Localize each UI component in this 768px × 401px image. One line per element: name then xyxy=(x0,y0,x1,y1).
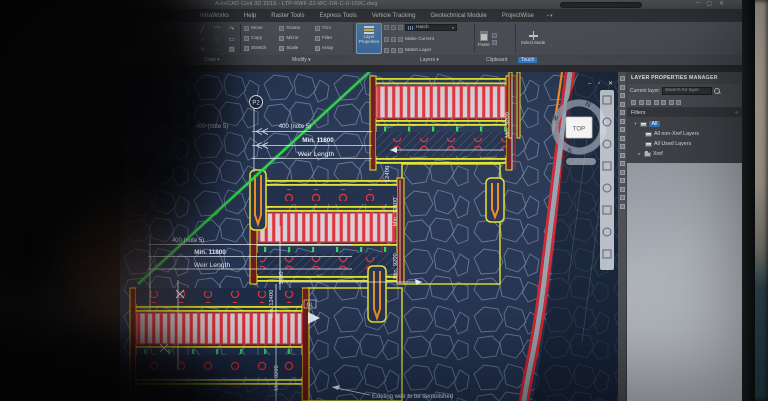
stretch-button[interactable]: Stretch xyxy=(244,46,279,51)
sheet-pile-3 xyxy=(368,266,386,322)
hatch-icon[interactable]: ▨ xyxy=(229,45,235,53)
stretch-icon xyxy=(244,46,249,51)
select-mode-button[interactable]: Select Mode xyxy=(521,31,545,46)
search-icon[interactable] xyxy=(714,88,720,94)
current-layer-row: Current layer: xyxy=(627,84,742,97)
palette-tool-icon[interactable] xyxy=(620,178,625,183)
dim-min-12400-v1: Min. 12400 xyxy=(393,198,399,227)
palette-tool-icon[interactable] xyxy=(620,127,625,132)
polyline-icon[interactable]: ∿ xyxy=(200,45,205,53)
modify-panel-label[interactable]: Modify ▾ xyxy=(292,57,311,63)
array-icon xyxy=(315,46,320,51)
trim-button[interactable]: Trim xyxy=(315,26,350,31)
svg-text:P2: P2 xyxy=(252,101,260,107)
layer-merge-icon[interactable] xyxy=(398,48,403,53)
layers-panel: Hatch ▾ Make Current Match Layer xyxy=(383,22,473,55)
palette-toolbar-icon[interactable] xyxy=(661,100,666,105)
demolish-note-text: Existing weir to be demolished xyxy=(372,394,453,400)
scale-button[interactable]: Scale xyxy=(279,46,314,51)
arc-icon[interactable]: ⌒ xyxy=(214,24,221,34)
window-title: AutoCAD Civil 3D 2019 - LTP-RWF-22-WC-DR… xyxy=(215,1,378,7)
palette-title: LAYER PROPERTIES MANAGER xyxy=(627,72,742,84)
tree-item-xref[interactable]: ▸ Xref xyxy=(627,149,742,159)
move-icon xyxy=(244,26,249,31)
mirror-button[interactable]: Mirror xyxy=(279,36,314,41)
rotate-icon xyxy=(279,26,284,31)
maximize-button[interactable]: ▢ xyxy=(706,0,712,7)
layers-used-icon xyxy=(645,142,652,147)
touch-panel: Select Mode xyxy=(517,22,549,55)
layer-off-icon[interactable] xyxy=(398,37,403,42)
palette-toolbar[interactable] xyxy=(627,97,742,108)
chevron-down-icon: ▾ xyxy=(452,25,454,30)
palette-tool-icon[interactable] xyxy=(620,144,625,149)
palette-side-icons[interactable] xyxy=(618,72,627,401)
palette-tool-icon[interactable] xyxy=(620,110,625,115)
weir-length-text-2: Weir Length xyxy=(194,262,231,269)
copy-button[interactable]: Copy xyxy=(244,36,279,41)
layer-list-area[interactable] xyxy=(627,163,742,401)
menu-help[interactable]: Help xyxy=(242,12,258,20)
sheet-pile-2 xyxy=(486,178,504,222)
layer-prev-icon[interactable] xyxy=(391,48,396,53)
layer-properties-button[interactable]: Layer Properties xyxy=(356,23,382,54)
close-button[interactable]: ✕ xyxy=(719,0,724,7)
p2-marker: P2 xyxy=(250,96,263,109)
menu-vehicle-tracking[interactable]: Vehicle Tracking xyxy=(370,12,418,20)
titlebar: AutoCAD Civil 3D 2019 - LTP-RWF-22-WC-DR… xyxy=(120,0,742,9)
dim-400-note5-text: 400 (note 5) xyxy=(279,124,311,130)
mirror-icon xyxy=(279,36,284,41)
folder-icon xyxy=(644,152,651,157)
tree-expand-icon[interactable]: ▾ xyxy=(633,121,638,127)
paste-icon xyxy=(480,31,488,41)
dim-400-note5-text-2: 400 (note 5) xyxy=(172,238,204,244)
monitor-bezel xyxy=(742,0,755,401)
trim-icon xyxy=(315,26,320,31)
rotate-button[interactable]: Rotate xyxy=(279,26,314,31)
palette-tool-icon[interactable] xyxy=(620,76,625,81)
dim-3400-v: 3400 xyxy=(279,272,285,285)
layer-properties-icon xyxy=(364,26,374,34)
menu-overflow-icon[interactable]: ▪ ▾ xyxy=(547,13,553,19)
touch-panel-label[interactable]: Touch xyxy=(518,57,537,63)
draw-panel-label[interactable]: Draw ▾ xyxy=(204,57,220,63)
layer-properties-palette: LAYER PROPERTIES MANAGER Current layer: … xyxy=(618,72,742,401)
clipboard-panel: Paste xyxy=(476,22,514,55)
layers-all-icon xyxy=(640,122,647,127)
layers-filter-icon xyxy=(645,132,652,137)
rect-icon[interactable]: ▭ xyxy=(229,35,235,43)
circle-icon[interactable]: ○ xyxy=(200,36,204,43)
palette-toolbar-icon[interactable] xyxy=(631,100,636,105)
palette-tool-icon[interactable] xyxy=(620,136,625,141)
select-mode-icon xyxy=(529,31,538,40)
filters-header[interactable]: Filters « xyxy=(627,108,742,117)
palette-tool-icon[interactable] xyxy=(620,195,625,200)
palette-tool-icon[interactable] xyxy=(620,170,625,175)
tree-expand-icon[interactable]: ▸ xyxy=(637,151,642,157)
hatch-dropdown[interactable]: Hatch ▾ xyxy=(405,24,457,31)
layer-freeze-icon[interactable] xyxy=(391,25,396,30)
palette-toolbar-icon[interactable] xyxy=(654,100,659,105)
draw-panel: ╱ ⌒ ↷ ○ ◌ ▭ ∿ · ▨ xyxy=(195,22,239,55)
svg-text:GL: GL xyxy=(307,303,314,309)
modify-panel: Move Rotate Trim Copy Mirror Fillet Stre… xyxy=(242,22,352,55)
scale-icon xyxy=(279,46,284,51)
dim-min-11800-text: Min. 11800 xyxy=(302,137,334,144)
layer-unisolate-icon[interactable] xyxy=(391,37,396,42)
photo-scene: AutoCAD Civil 3D 2019 - LTP-RWF-22-WC-DR… xyxy=(0,0,768,401)
minimize-button[interactable]: – xyxy=(696,0,699,7)
collapse-icon[interactable]: « xyxy=(735,110,738,116)
dim-min-9200-v3: Min. 9200 xyxy=(274,365,280,390)
panel-label-strip: Draw ▾ Modify ▾ Layers ▾ Clipboard Touch xyxy=(120,55,742,65)
cut-clip-icon[interactable] xyxy=(492,40,497,45)
dim-12400-v: 12400 xyxy=(385,166,391,182)
dim-min-11800-text-2: Min. 11800 xyxy=(194,249,226,256)
copy-icon xyxy=(244,36,249,41)
titlebar-search-box[interactable] xyxy=(560,2,642,8)
file-tab-strip xyxy=(120,65,742,72)
menu-infraworks[interactable]: InfraWorks xyxy=(198,12,231,20)
fillet-button[interactable]: Fillet xyxy=(315,36,350,41)
palette-toolbar-icon[interactable] xyxy=(646,100,651,105)
layer-isolate-icon[interactable] xyxy=(384,37,389,42)
palette-tool-icon[interactable] xyxy=(620,85,625,90)
palette-tool-icon[interactable] xyxy=(620,102,625,107)
navigation-bar[interactable] xyxy=(600,90,614,270)
weir-length-text: Weir Length xyxy=(298,151,335,158)
tree-item-all[interactable]: ▾ All xyxy=(627,119,742,129)
hatch-swatch-icon xyxy=(408,26,414,30)
redo-icon[interactable]: ↷ xyxy=(229,25,234,33)
menu-geotechnical-module[interactable]: Geotechnical Module xyxy=(428,12,488,20)
fillet-icon xyxy=(315,36,320,41)
tree-item-non-xref[interactable]: All non-Xref Layers xyxy=(627,129,742,139)
dim-min-9200-v1: Min. 9200 xyxy=(505,112,511,137)
layer-on-icon[interactable] xyxy=(384,25,389,30)
match-layer-button[interactable]: Match Layer xyxy=(405,48,431,53)
filter-tree: ▾ All All non-Xref Layers All Used Layer… xyxy=(627,117,742,163)
palette-tool-icon[interactable] xyxy=(620,93,625,98)
viewcube-menu-pill[interactable] xyxy=(566,158,596,165)
ribbon: ╱ ⌒ ↷ ○ ◌ ▭ ∿ · ▨ Move Rotate Trim Copy … xyxy=(120,22,742,55)
layers-panel-label[interactable]: Layers ▾ xyxy=(420,57,439,63)
menu-express-tools[interactable]: Express Tools xyxy=(318,12,359,20)
palette-toolbar-icon[interactable] xyxy=(639,100,644,105)
ellipse-icon[interactable]: ◌ xyxy=(215,36,219,43)
palette-toolbar-icon[interactable] xyxy=(676,100,681,105)
menubar: InfraWorks Help Raster Tools Express Too… xyxy=(120,9,742,22)
point-icon[interactable]: · xyxy=(216,46,218,53)
drawing-canvas[interactable]: 400 (note 5) 400 (note 5) Min. 11800 Wei… xyxy=(120,72,618,401)
viewport-restore: ▫ xyxy=(598,81,600,87)
palette-tool-icon[interactable] xyxy=(620,153,625,158)
array-button[interactable]: Array xyxy=(315,46,350,51)
current-layer-label: Current layer: xyxy=(630,88,660,94)
monitor-screen: AutoCAD Civil 3D 2019 - LTP-RWF-22-WC-DR… xyxy=(120,0,742,401)
dim-400-note5-left-text: 400 (note 5) xyxy=(196,124,228,130)
layer-lock-icon[interactable] xyxy=(398,25,403,30)
palette-toolbar-icon[interactable] xyxy=(669,100,674,105)
layer-walk-icon[interactable] xyxy=(384,48,389,53)
make-current-button[interactable]: Make Current xyxy=(405,37,434,42)
line-icon[interactable]: ╱ xyxy=(200,25,204,33)
clipboard-panel-label: Clipboard xyxy=(486,57,507,63)
palette-tool-icon[interactable] xyxy=(620,161,625,166)
move-button[interactable]: Move xyxy=(244,26,279,31)
viewport-close: ✕ xyxy=(608,81,613,87)
window-controls: – ▢ ✕ xyxy=(696,0,724,7)
dim-min-12400-v2: Min. 12400 xyxy=(269,290,275,319)
viewcube-face: TOP xyxy=(573,127,585,133)
palette-tool-icon[interactable] xyxy=(620,187,625,192)
tree-item-used[interactable]: All Used Layers xyxy=(627,139,742,149)
palette-tool-icon[interactable] xyxy=(620,204,625,209)
menu-raster-tools[interactable]: Raster Tools xyxy=(269,12,306,20)
copy-clip-icon[interactable] xyxy=(492,33,497,38)
paste-button[interactable]: Paste xyxy=(478,31,490,47)
palette-tool-icon[interactable] xyxy=(620,119,625,124)
layer-search-input[interactable] xyxy=(662,87,712,95)
dim-min-9200-v2: Min. 9200 xyxy=(393,253,399,278)
menu-projectwise[interactable]: ProjectWise xyxy=(500,12,536,20)
